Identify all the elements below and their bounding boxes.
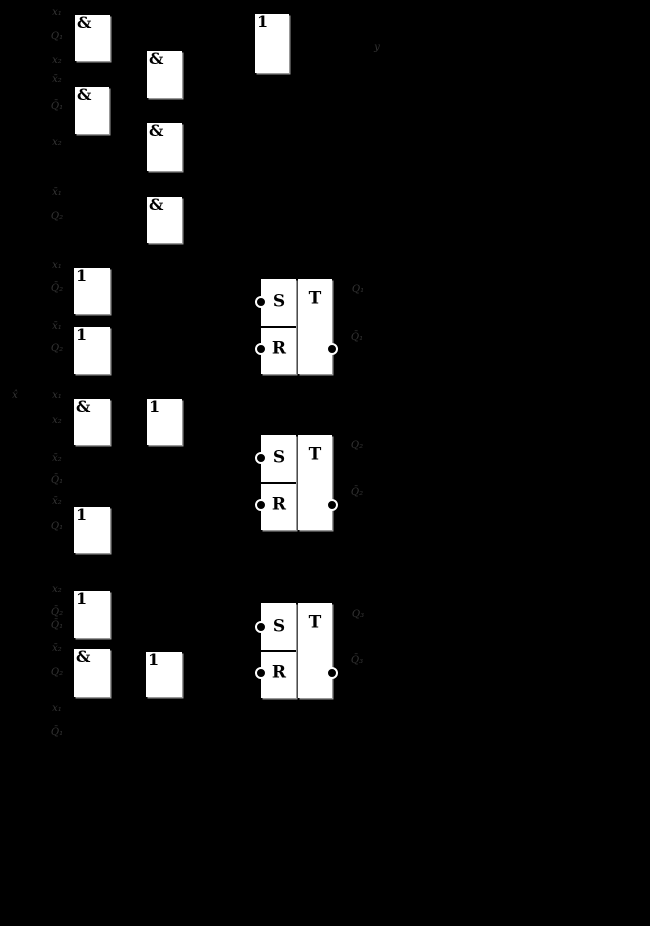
input-label-16: Q̄₁ (51, 476, 63, 486)
input-label-4: x̄₂ (52, 75, 62, 85)
or-gate-glyph: 1 (149, 398, 160, 416)
or-gate-glyph: 1 (257, 13, 268, 31)
output-y-label: y (374, 43, 380, 53)
sr-divider-line (261, 482, 296, 484)
set-input-letter: S (273, 294, 285, 311)
or-gate-6: 1 (74, 591, 110, 638)
output-inversion-bubble (326, 499, 338, 511)
and-gate-glyph: & (77, 14, 91, 32)
q2-bar-label: Q̄₂ (351, 488, 363, 498)
reset-input-letter: R (272, 497, 286, 514)
set-inversion-bubble (255, 296, 267, 308)
input-label-12: Q₂ (51, 344, 63, 354)
or-gate-5: 1 (74, 507, 110, 553)
input-label-8: Q₂ (51, 212, 63, 222)
rst-flipflop-1: SRT (261, 279, 332, 374)
input-label-1: x₁ (52, 8, 62, 18)
and-gate-glyph: & (149, 196, 163, 214)
input-label-9: x₁ (52, 261, 62, 271)
input-label-17: x̄₂ (52, 497, 62, 507)
or-gate-3: 1 (74, 327, 110, 374)
and-gate-glyph: & (76, 398, 90, 416)
rst-flipflop-3: SRT (261, 603, 332, 698)
or-gate-7: 1 (146, 652, 182, 697)
and-gate-3: & (147, 51, 182, 98)
or-gate-glyph: 1 (76, 590, 87, 608)
toggle-letter: T (309, 615, 322, 632)
input-label-11: x̄₁ (52, 322, 62, 332)
and-gate-glyph: & (149, 50, 163, 68)
and-gate-glyph: & (77, 86, 91, 104)
output-inversion-bubble (326, 343, 338, 355)
input-label-20: Q̄₂ (51, 608, 63, 618)
set-inversion-bubble (255, 621, 267, 633)
and-gate-1: & (75, 15, 110, 61)
input-label-13: x₁ (52, 391, 62, 401)
sr-divider-line (261, 650, 296, 652)
input-label-14: x₂ (52, 416, 62, 426)
input-label-10: Q̄₂ (51, 284, 63, 294)
sr-divider-line (261, 326, 296, 328)
input-label-21: Q̄₁ (51, 621, 63, 631)
and-gate-2: & (75, 87, 109, 134)
set-input-letter: S (273, 450, 285, 467)
input-label-24: x₁ (52, 704, 62, 714)
set-inversion-bubble (255, 452, 267, 464)
input-label-2: Q₁ (51, 32, 63, 42)
or-gate-glyph: 1 (76, 326, 87, 344)
or-gate-1: 1 (255, 14, 289, 73)
reset-input-letter: R (272, 665, 286, 682)
q3-bar-label: Q̄₃ (351, 656, 363, 666)
input-label-25: Q̄₁ (51, 728, 63, 738)
rst-flipflop-2: SRT (261, 435, 332, 530)
logic-circuit-diagram: &&&&&111&111&1SRTSRTSRTx₁Q₁x₂x̄₂Q̄₁x₂x̄₁… (0, 0, 650, 926)
or-gate-4: 1 (147, 399, 182, 445)
output-inversion-bubble (326, 667, 338, 679)
or-gate-glyph: 1 (76, 267, 87, 285)
reset-inversion-bubble (255, 667, 267, 679)
reset-input-letter: R (272, 341, 286, 358)
input-label-6: x₂ (52, 138, 62, 148)
reset-inversion-bubble (255, 499, 267, 511)
and-gate-4: & (147, 123, 182, 171)
or-gate-2: 1 (74, 268, 110, 314)
input-label-23: Q₂ (51, 668, 63, 678)
and-gate-7: & (74, 649, 110, 697)
input-label-3: x₂ (52, 56, 62, 66)
set-input-letter: S (273, 619, 285, 636)
and-gate-5: & (147, 197, 182, 243)
toggle-letter: T (309, 291, 322, 308)
input-label-18: Q₁ (51, 522, 63, 532)
q3-label: Q₃ (352, 610, 364, 620)
input-label-22: x̄₂ (52, 644, 62, 654)
input-label-7: x̄₁ (52, 188, 62, 198)
and-gate-glyph: & (149, 122, 163, 140)
input-label-15: x̄₂ (52, 454, 62, 464)
x-hat-label: x̂ (12, 391, 18, 401)
q2-label: Q₂ (351, 441, 363, 451)
and-gate-glyph: & (76, 648, 90, 666)
input-label-5: Q̄₁ (51, 102, 63, 112)
input-label-19: x₂ (52, 585, 62, 595)
reset-inversion-bubble (255, 343, 267, 355)
or-gate-glyph: 1 (148, 651, 159, 669)
toggle-letter: T (309, 447, 322, 464)
or-gate-glyph: 1 (76, 506, 87, 524)
q1-bar-label: Q̄₁ (351, 333, 363, 343)
and-gate-6: & (74, 399, 110, 445)
q1-label: Q₁ (352, 285, 364, 295)
